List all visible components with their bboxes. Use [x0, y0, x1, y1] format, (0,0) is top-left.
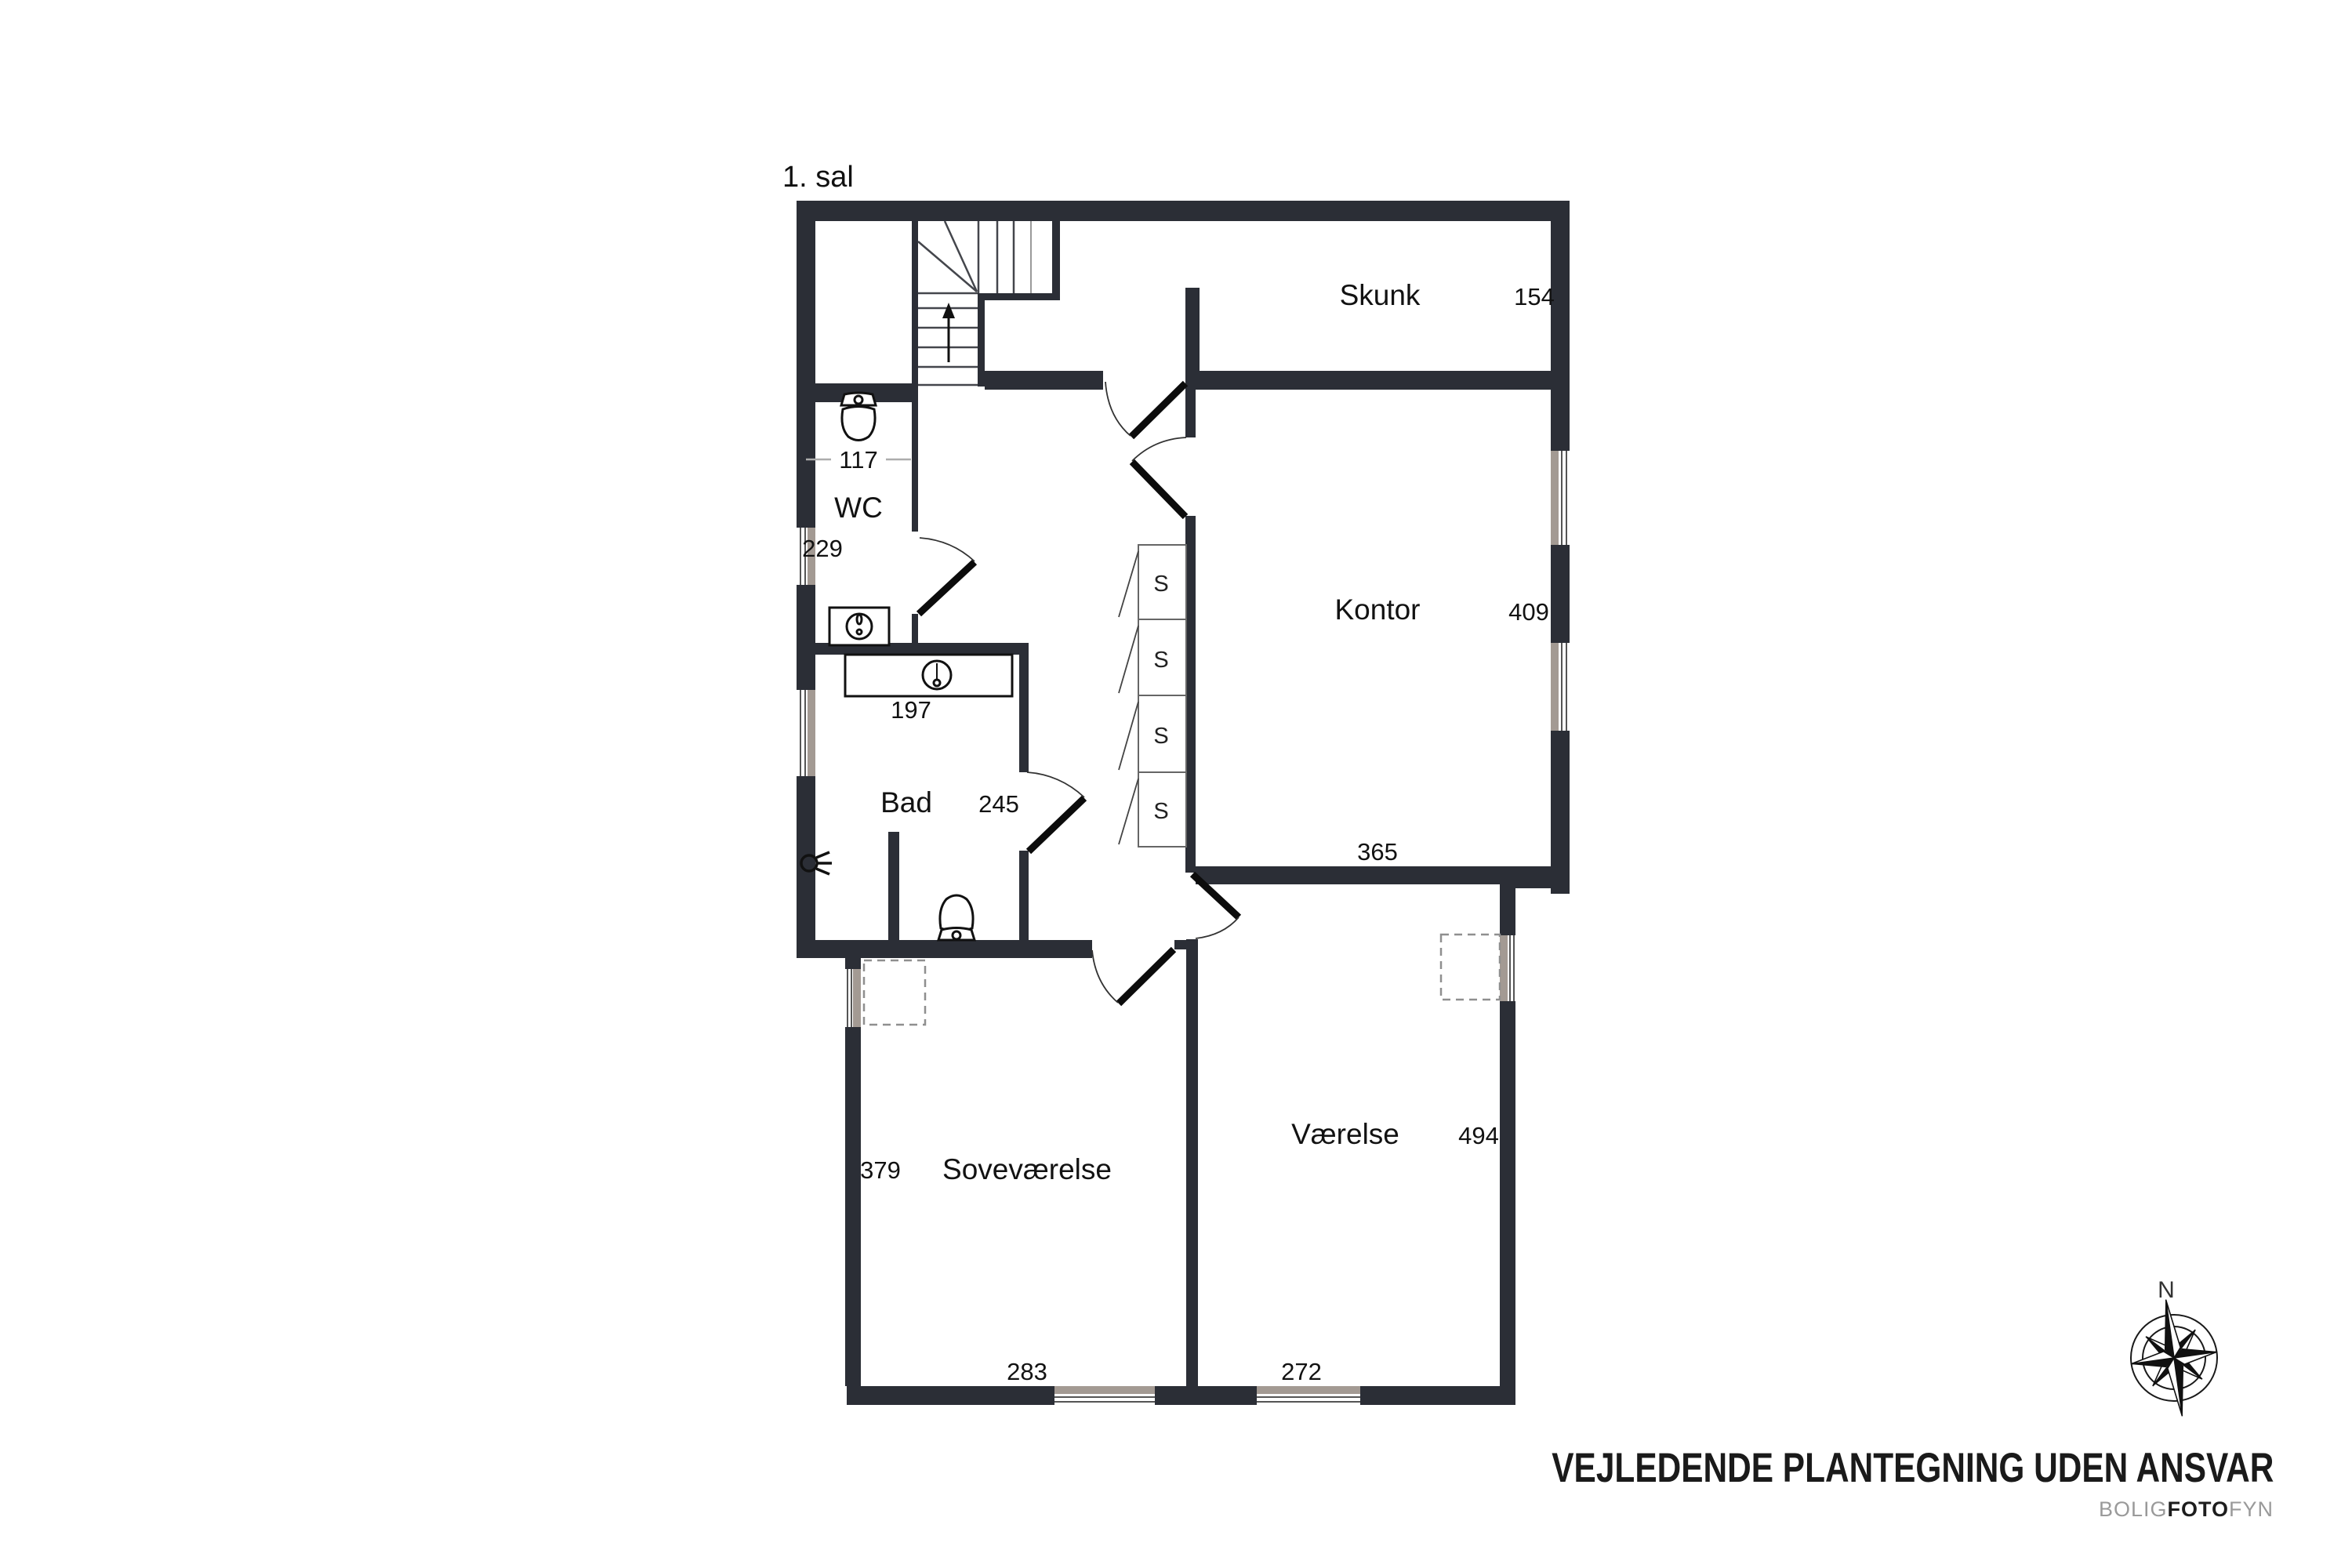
footer-disclaimer: VEJLEDENDE PLANTEGNING UDEN ANSVAR [1552, 1444, 2274, 1492]
closet-label-2: S [1153, 648, 1168, 673]
dim-wc-height: 229 [802, 535, 843, 562]
floor-plan-page: 1. sal [0, 0, 2352, 1568]
dim-vaerelse-width: 272 [1281, 1358, 1322, 1385]
door-landing [1105, 382, 1185, 437]
room-label-vaerelse: Værelse [1291, 1118, 1399, 1150]
closet-label-4: S [1153, 799, 1168, 824]
chimney-dashed-box-vaerelse [1441, 935, 1500, 1000]
toilet-icon-bad [938, 895, 975, 940]
brand-part-bolig: BOLIG [2099, 1497, 2168, 1521]
closet-label-1: S [1153, 572, 1168, 597]
room-label-skunk: Skunk [1340, 279, 1421, 311]
room-label-sovevaerelse: Soveværelse [942, 1153, 1112, 1185]
door-wc [919, 538, 975, 614]
toilet-icon-wc [841, 393, 876, 441]
room-label-bad: Bad [880, 786, 932, 818]
dim-skunk: 154 [1514, 283, 1555, 310]
footer-brand-logo: BOLIGFOTOFYN [2099, 1497, 2274, 1522]
door-sovevaerelse [1092, 949, 1174, 1004]
chimney-dashed-box-sovevaerelse [864, 960, 925, 1025]
dim-bad: 245 [978, 790, 1019, 818]
dim-wc-width: 117 [839, 446, 877, 474]
door-bad [1027, 772, 1084, 851]
dim-vaerelse-height: 494 [1458, 1122, 1499, 1149]
door-kontor [1132, 437, 1186, 517]
dim-sovevaerelse-width: 283 [1007, 1358, 1047, 1385]
dim-kontor-width: 365 [1357, 838, 1398, 866]
room-label-wc: WC [834, 492, 883, 524]
dim-sovevaerelse-height: 379 [860, 1156, 901, 1184]
floor-plan-svg: S S S S [0, 0, 2352, 1568]
closet-label-3: S [1153, 724, 1168, 749]
stairs-up-arrow [942, 303, 955, 362]
compass-north-label: N [2158, 1277, 2175, 1303]
dim-kontor-height: 409 [1508, 598, 1549, 626]
sink-icon-bad [845, 655, 1012, 696]
sink-icon-wc [829, 608, 889, 645]
compass-rose-icon: N [2123, 1277, 2225, 1422]
closets: S S S S [1119, 545, 1186, 847]
dim-bad-counter: 197 [891, 696, 931, 724]
room-label-kontor: Kontor [1334, 593, 1420, 626]
brand-part-foto: FOTO [2167, 1497, 2229, 1521]
brand-part-fyn: FYN [2229, 1497, 2274, 1521]
staircase [918, 221, 1031, 385]
